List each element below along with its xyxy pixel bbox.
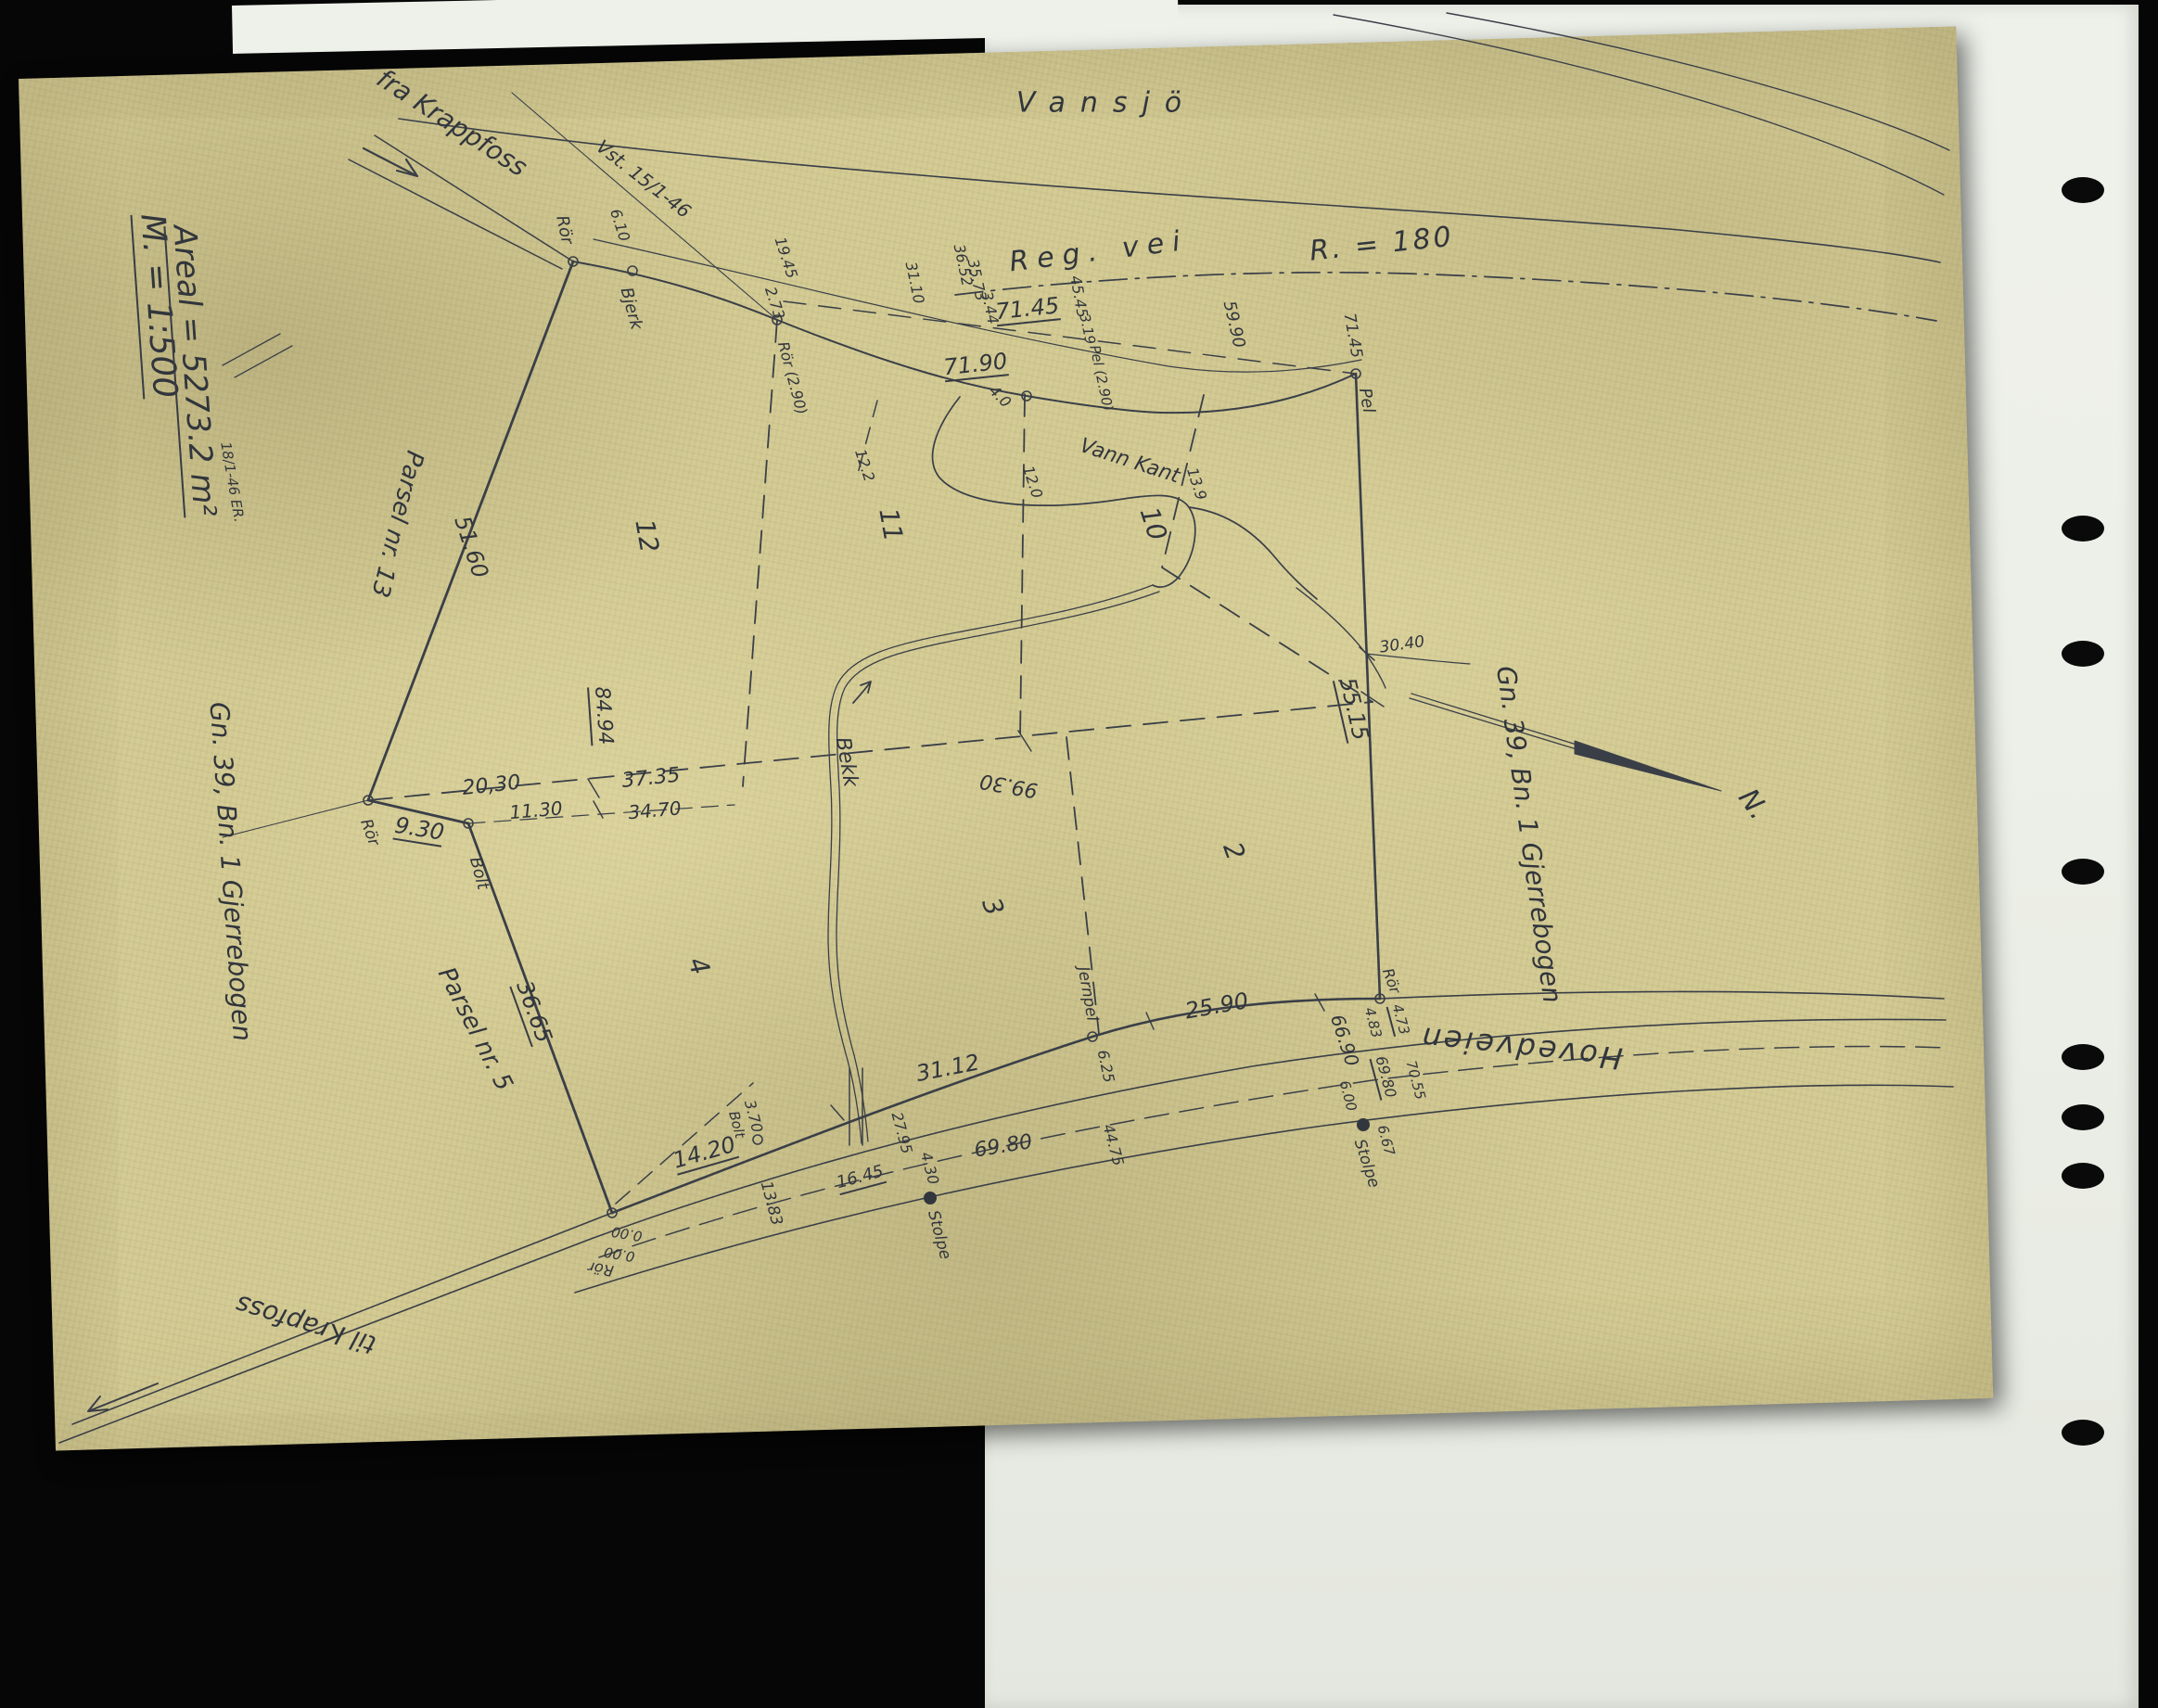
punch-hole [2062,1044,2104,1070]
survey-map-sheet [19,26,1993,1450]
punch-hole [2062,1420,2104,1446]
punch-hole [2062,859,2104,885]
punch-hole [2062,177,2104,203]
punch-hole [2062,516,2104,542]
scanned-survey-document: VansjöReg. veiR. = 180fra KrappfossVst. … [0,0,2158,1708]
punch-hole [2062,1104,2104,1130]
punch-hole [2062,1163,2104,1189]
punch-hole [2062,641,2104,667]
